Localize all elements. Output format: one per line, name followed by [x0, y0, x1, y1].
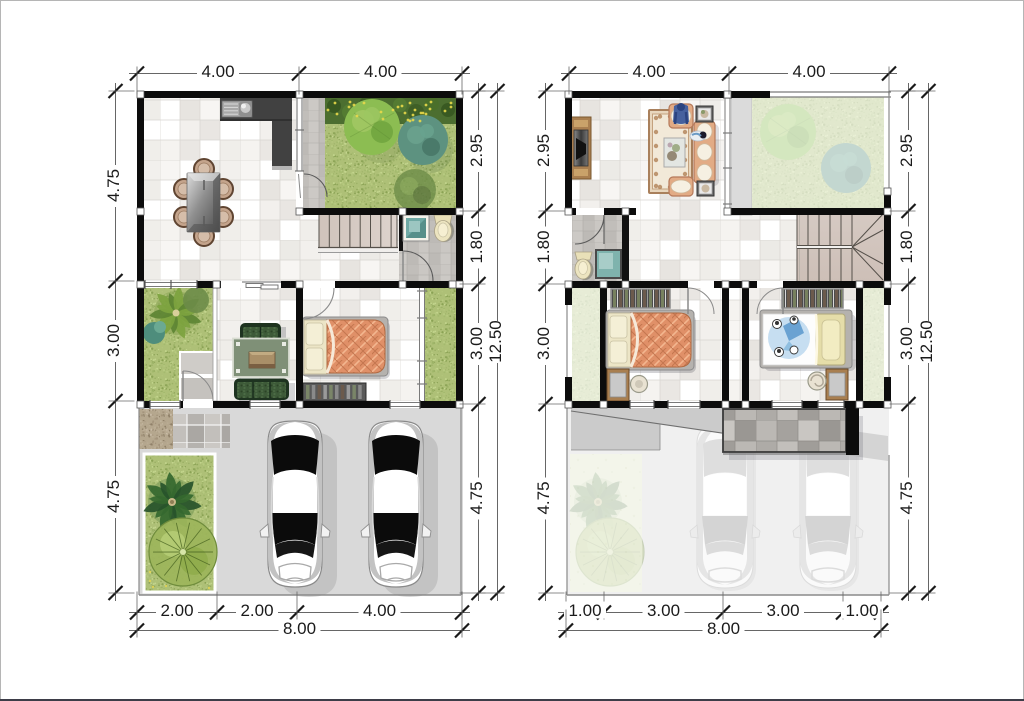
svg-text:2.95: 2.95 — [897, 134, 916, 167]
svg-text:12.50: 12.50 — [917, 320, 936, 363]
svg-text:8.00: 8.00 — [707, 619, 740, 638]
svg-text:4.00: 4.00 — [632, 62, 665, 81]
svg-text:4.75: 4.75 — [897, 481, 916, 514]
svg-text:1.80: 1.80 — [534, 230, 553, 263]
svg-text:2.00: 2.00 — [240, 601, 273, 620]
svg-text:3.00: 3.00 — [766, 601, 799, 620]
svg-text:4.00: 4.00 — [364, 62, 397, 81]
svg-text:8.00: 8.00 — [283, 619, 316, 638]
svg-text:3.00: 3.00 — [647, 601, 680, 620]
svg-text:3.00: 3.00 — [467, 327, 486, 360]
svg-text:4.75: 4.75 — [534, 481, 553, 514]
svg-text:3.00: 3.00 — [897, 327, 916, 360]
svg-text:4.00: 4.00 — [201, 62, 234, 81]
svg-text:4.75: 4.75 — [104, 480, 123, 513]
svg-text:4.75: 4.75 — [467, 481, 486, 514]
svg-text:4.00: 4.00 — [363, 601, 396, 620]
svg-text:2.95: 2.95 — [534, 134, 553, 167]
svg-text:1.00: 1.00 — [568, 601, 601, 620]
svg-text:12.50: 12.50 — [486, 320, 505, 363]
svg-text:1.00: 1.00 — [845, 601, 878, 620]
svg-text:4.00: 4.00 — [792, 62, 825, 81]
svg-text:1.80: 1.80 — [467, 230, 486, 263]
svg-text:3.00: 3.00 — [104, 324, 123, 357]
svg-text:2.95: 2.95 — [467, 134, 486, 167]
svg-text:4.75: 4.75 — [104, 169, 123, 202]
svg-text:3.00: 3.00 — [534, 327, 553, 360]
svg-text:1.80: 1.80 — [897, 230, 916, 263]
svg-text:2.00: 2.00 — [160, 601, 193, 620]
